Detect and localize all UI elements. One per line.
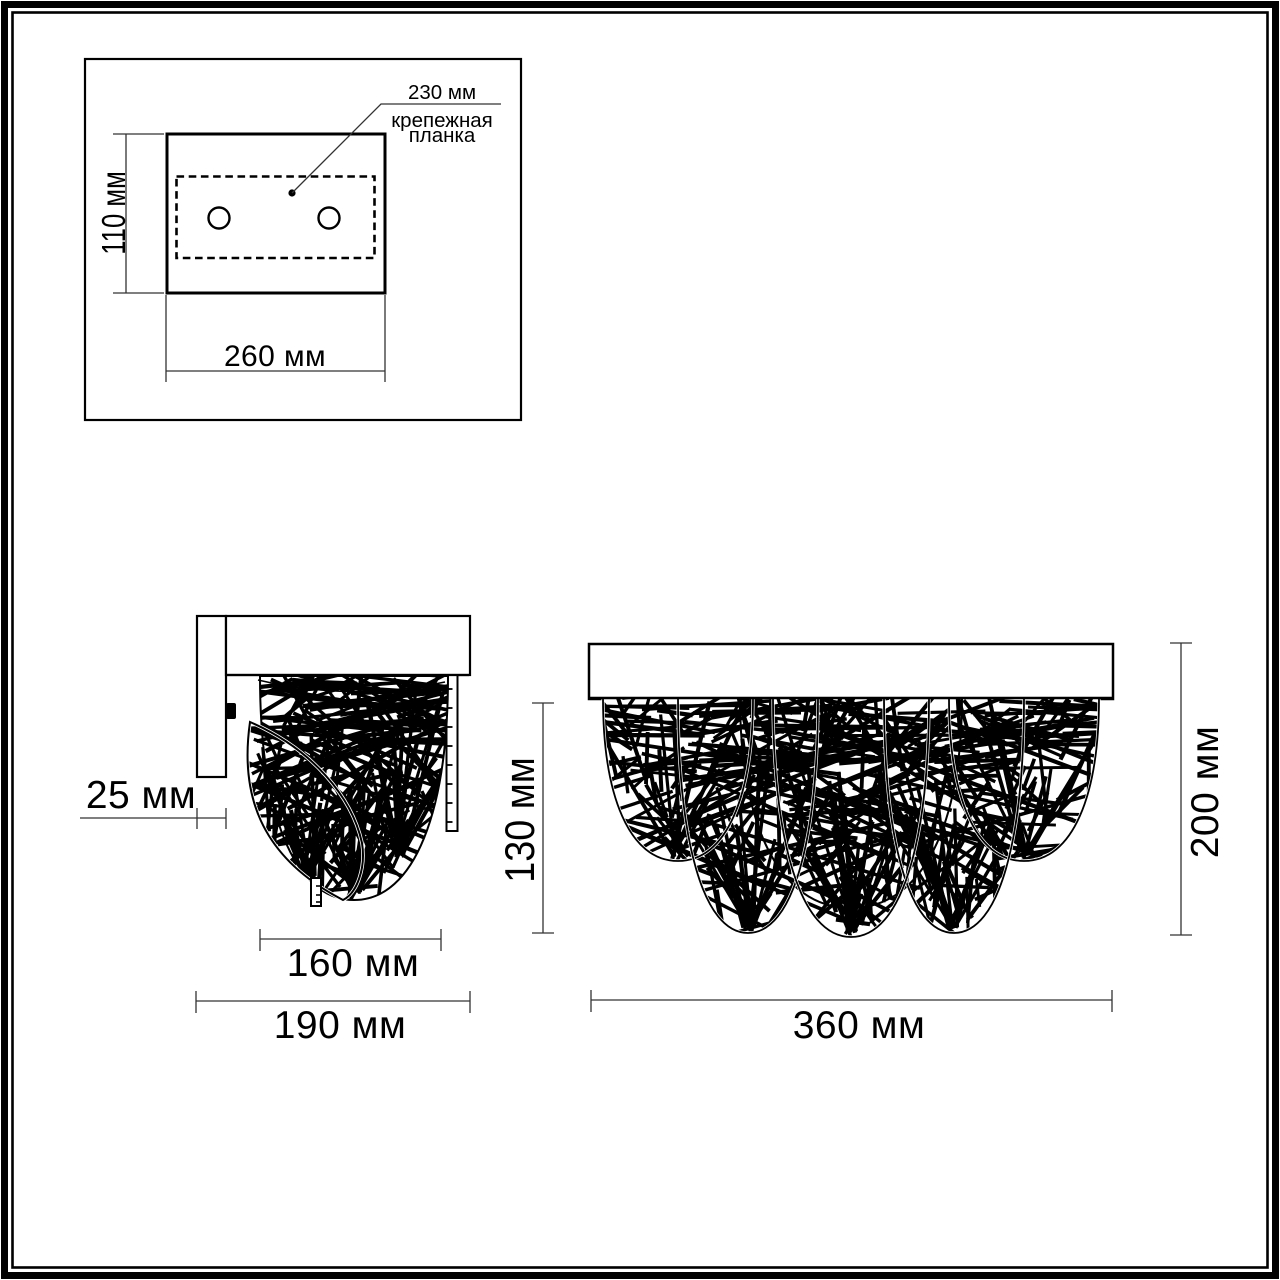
- svg-text:планка: планка: [409, 124, 476, 147]
- svg-text:200 мм: 200 мм: [1184, 726, 1227, 859]
- svg-text:110 мм: 110 мм: [96, 171, 133, 255]
- svg-text:360 мм: 360 мм: [793, 1004, 926, 1047]
- svg-text:260 мм: 260 мм: [224, 340, 326, 373]
- svg-text:130 мм: 130 мм: [497, 757, 543, 883]
- svg-text:190 мм: 190 мм: [274, 1004, 407, 1047]
- svg-text:25 мм: 25 мм: [86, 774, 196, 817]
- svg-text:160 мм: 160 мм: [287, 942, 420, 985]
- svg-text:230 мм: 230 мм: [408, 81, 476, 104]
